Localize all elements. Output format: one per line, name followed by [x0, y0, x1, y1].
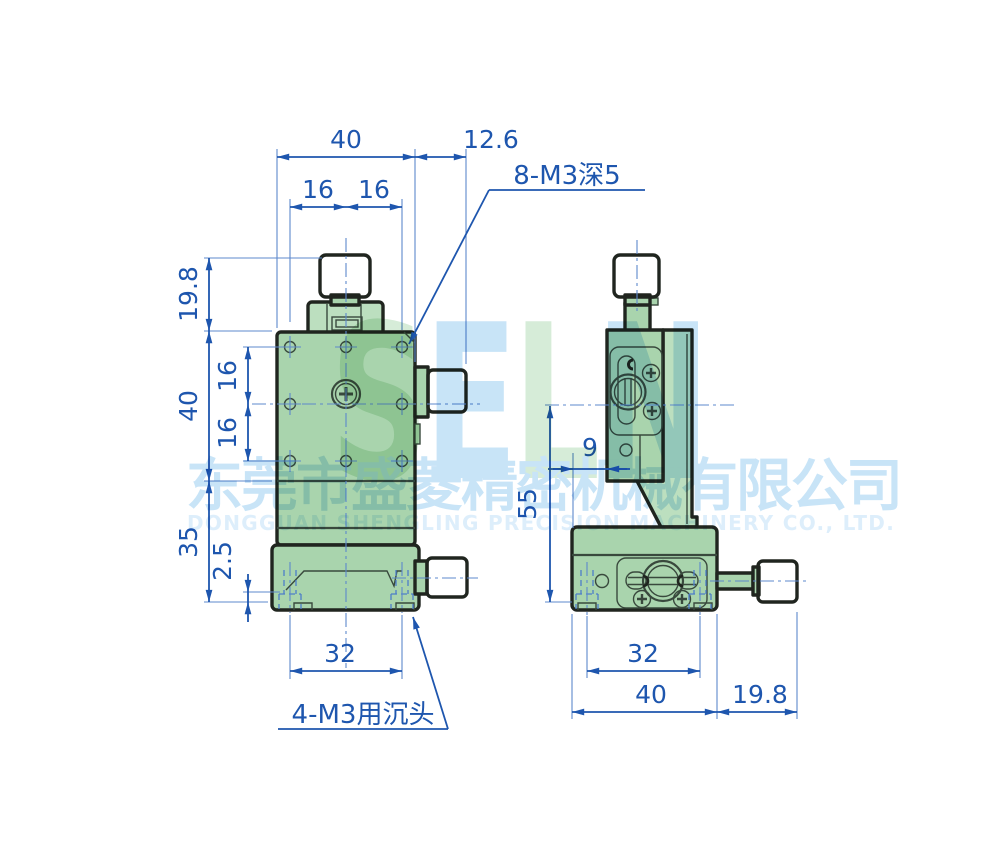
svg-text:32: 32	[627, 639, 659, 668]
svg-text:16: 16	[358, 175, 390, 204]
dim-front-bottom-pitch: 32	[290, 639, 402, 671]
technical-drawing: 40 12.6 16 16 8-M3深5 19.8 40	[0, 0, 1001, 853]
side-base	[572, 527, 717, 610]
dim-front-lip-height: 2.5	[208, 541, 248, 622]
dim-front-knob-height: 19.8	[174, 258, 209, 331]
side-shaft	[625, 303, 650, 332]
front-side-knob	[415, 367, 466, 444]
svg-text:35: 35	[174, 526, 203, 558]
dim-front-body-height: 40	[174, 331, 209, 481]
svg-text:40: 40	[174, 390, 203, 422]
svg-text:16: 16	[213, 360, 242, 392]
dim-front-hole-pitch-vertical: 16 16	[213, 347, 248, 461]
callout-4-m3: 4-M3用沉头	[278, 617, 448, 730]
dim-side-bottom-pitch: 32	[587, 639, 700, 671]
dim-front-top-offset: 12.6	[415, 125, 519, 157]
svg-text:40: 40	[635, 680, 667, 709]
svg-text:32: 32	[324, 639, 356, 668]
svg-text:19.8: 19.8	[732, 680, 788, 709]
front-vertical-knob	[320, 255, 370, 297]
dim-side-height: 55	[513, 406, 550, 602]
drawing-canvas: 40 12.6 16 16 8-M3深5 19.8 40	[0, 0, 1001, 853]
svg-text:9: 9	[582, 433, 598, 462]
dim-side-base-width: 40	[572, 680, 717, 712]
svg-text:55: 55	[513, 488, 542, 520]
side-view	[545, 240, 806, 615]
svg-text:40: 40	[330, 125, 362, 154]
front-side-knob-grip	[428, 370, 466, 412]
svg-text:16: 16	[213, 417, 242, 449]
svg-text:2.5: 2.5	[208, 541, 237, 581]
front-view	[252, 238, 480, 668]
dim-front-top-width: 40	[277, 125, 415, 157]
callout-8-m3: 8-M3深5	[409, 161, 645, 344]
svg-text:12.6: 12.6	[463, 125, 519, 154]
svg-text:19.8: 19.8	[174, 266, 203, 322]
dim-side-knob-length: 19.8	[717, 680, 797, 712]
dimensions: 40 12.6 16 16 8-M3深5 19.8 40	[174, 125, 797, 730]
svg-text:4-M3用沉头: 4-M3用沉头	[292, 700, 435, 730]
svg-text:16: 16	[302, 175, 334, 204]
dim-front-top-pitch: 16 16	[290, 175, 402, 207]
svg-text:8-M3深5: 8-M3深5	[513, 161, 620, 191]
dim-front-base-height: 35	[174, 481, 209, 602]
